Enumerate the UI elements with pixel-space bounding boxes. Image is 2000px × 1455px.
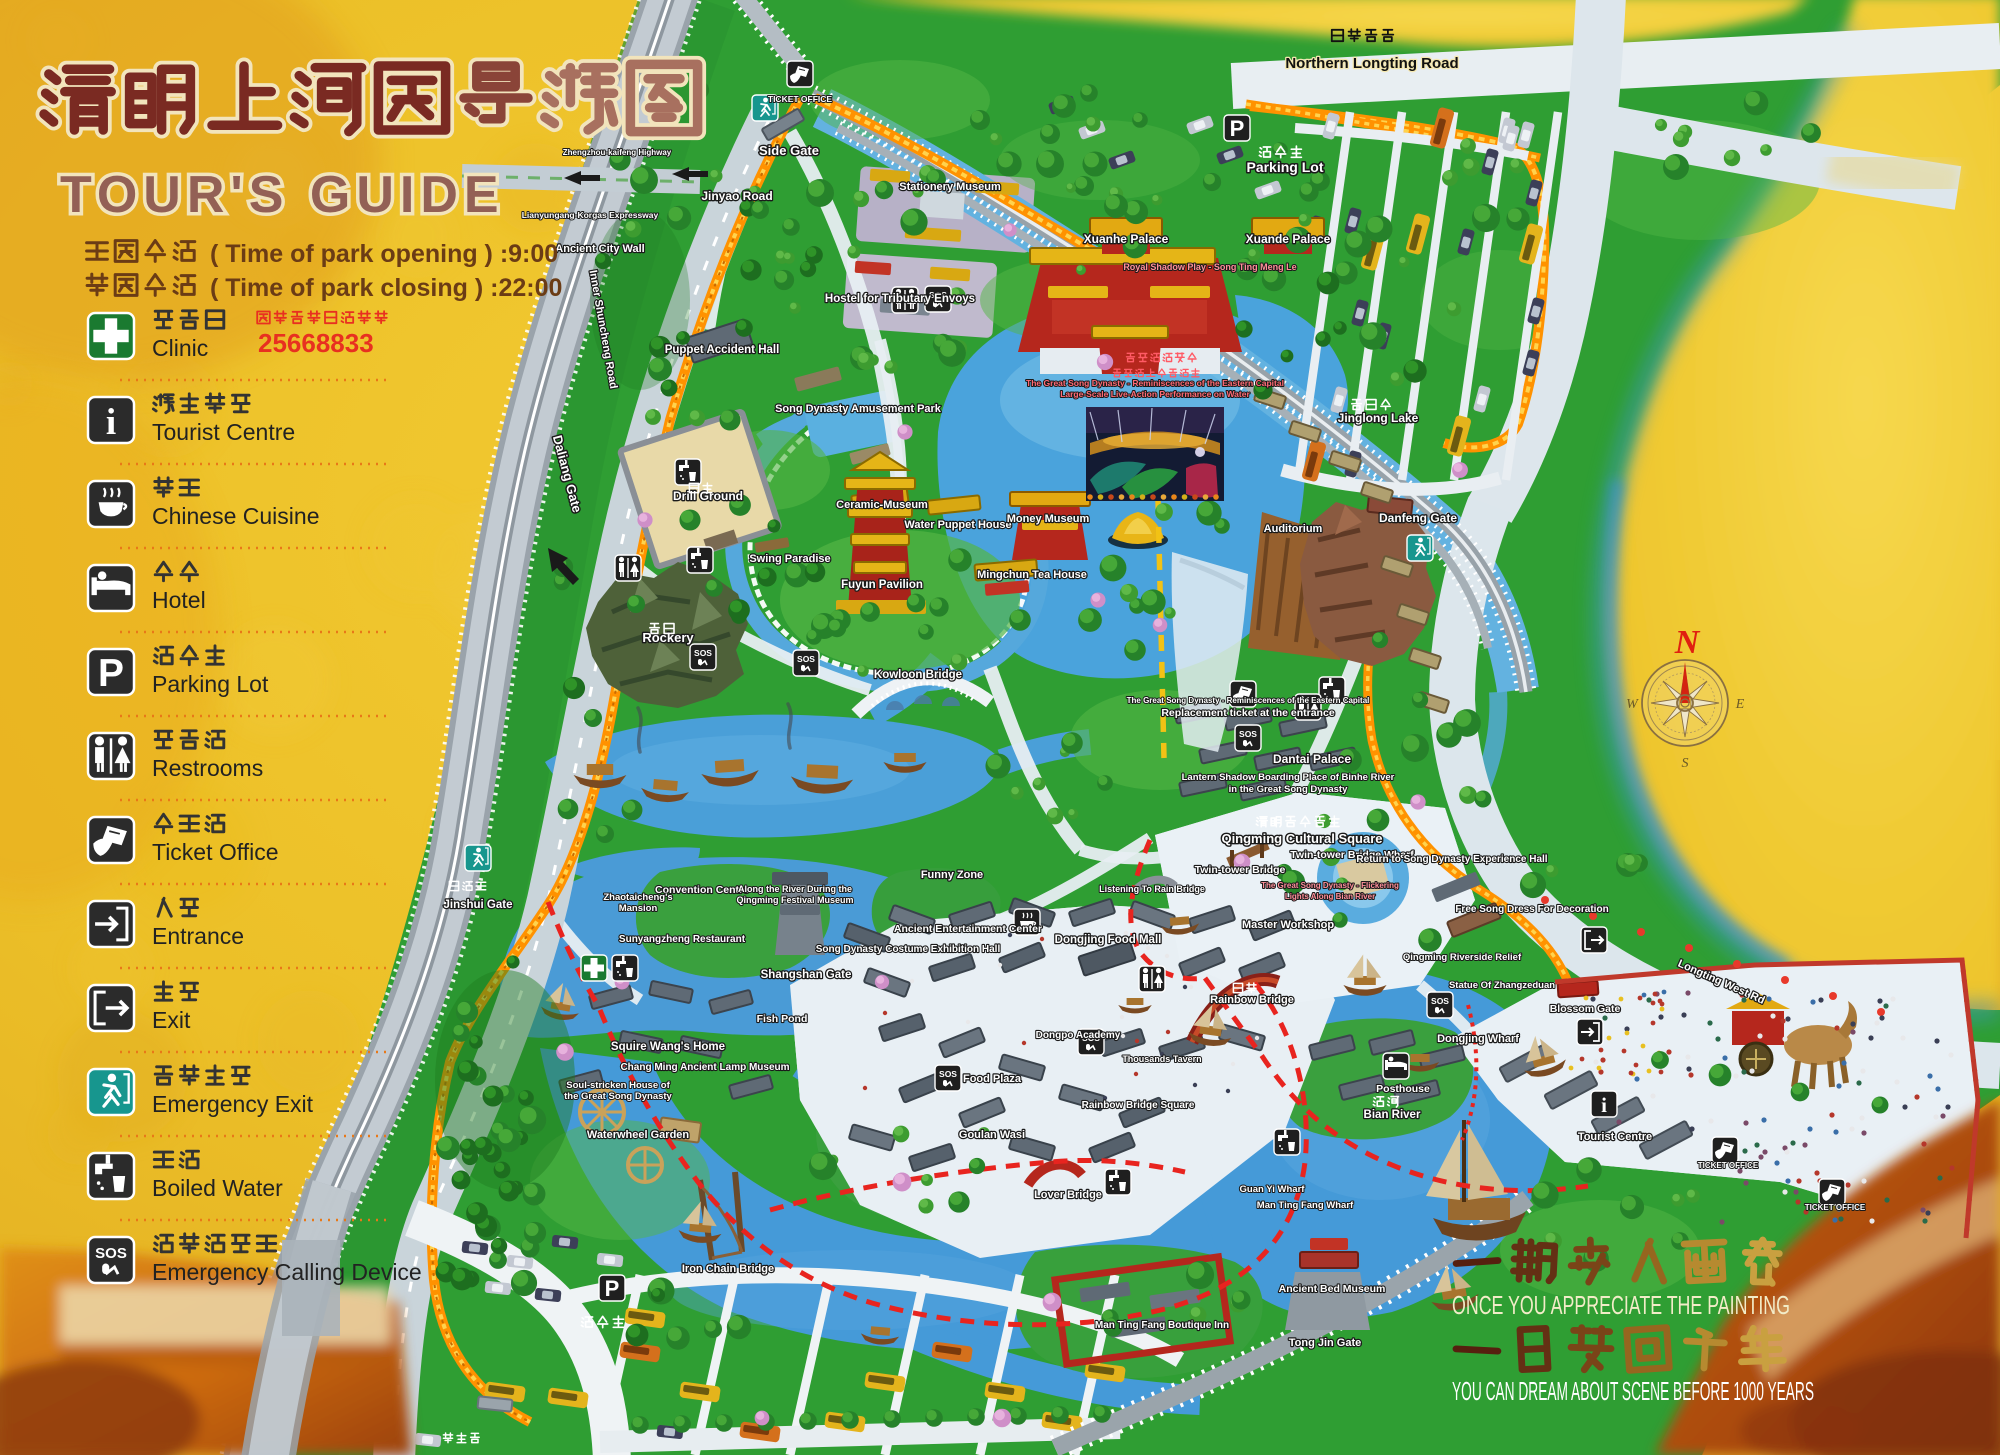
svg-text:Man Ting Fang Boutique Inn: Man Ting Fang Boutique Inn [1095, 1320, 1229, 1331]
svg-text:Zhaotaicheng's: Zhaotaicheng's [603, 892, 672, 903]
svg-text:Rainbow Bridge Square: Rainbow Bridge Square [1082, 1100, 1195, 1111]
svg-text:Xuanhe Palace: Xuanhe Palace [1084, 232, 1169, 246]
svg-text:Northern Longting Road: Northern Longting Road [1285, 55, 1458, 72]
svg-text:Return to Song Dynasty Experie: Return to Song Dynasty Experience Hall [1356, 854, 1547, 865]
svg-text:Water Puppet House: Water Puppet House [904, 519, 1011, 531]
svg-text:Free Song Dress For Decoration: Free Song Dress For Decoration [1455, 904, 1608, 915]
svg-text:( Time of park closing ) :22:0: ( Time of park closing ) :22:00 [210, 274, 562, 302]
svg-text:TICKET OFFICE: TICKET OFFICE [1805, 1203, 1866, 1212]
svg-text:Guan Yi Wharf: Guan Yi Wharf [1240, 1184, 1306, 1195]
svg-text:Emergency Exit: Emergency Exit [152, 1091, 314, 1117]
svg-text:Qingming Riverside Relief: Qingming Riverside Relief [1403, 952, 1522, 963]
svg-text:P: P [98, 652, 124, 695]
svg-text:Auditorium: Auditorium [1264, 523, 1323, 535]
svg-text:Song Dynasty Amusement Park: Song Dynasty Amusement Park [775, 403, 942, 415]
svg-text:Blossom Gate: Blossom Gate [1550, 1003, 1621, 1015]
svg-text:Emergency Calling Device: Emergency Calling Device [152, 1259, 422, 1285]
svg-text:Entrance: Entrance [152, 923, 244, 949]
svg-text:i: i [1601, 1093, 1607, 1117]
svg-text:Lianyungang-Korgas Expressway: Lianyungang-Korgas Expressway [522, 210, 659, 220]
svg-text:SOS: SOS [1431, 996, 1449, 1006]
svg-text:25668833: 25668833 [258, 328, 374, 358]
svg-text:Tourist Centre: Tourist Centre [1578, 1131, 1652, 1143]
svg-text:Hotel: Hotel [152, 587, 206, 613]
svg-text:Thousands Tavern: Thousands Tavern [1122, 1054, 1201, 1064]
svg-text:Statue Of Zhangzeduan: Statue Of Zhangzeduan [1449, 980, 1555, 991]
svg-text:Jinyao Road: Jinyao Road [701, 189, 772, 203]
svg-text:Jinglong Lake: Jinglong Lake [1338, 411, 1419, 425]
svg-text:the Great Song Dynasty: the Great Song Dynasty [564, 1091, 672, 1102]
svg-text:Posthouse: Posthouse [1376, 1083, 1430, 1095]
svg-text:Ticket Office: Ticket Office [152, 839, 279, 865]
svg-text:Tong Jin Gate: Tong Jin Gate [1289, 1337, 1362, 1349]
svg-text:Twin-tower Bridge: Twin-tower Bridge [1195, 864, 1286, 876]
svg-text:Lover Bridge: Lover Bridge [1034, 1189, 1102, 1201]
svg-text:The Great Song Dynasty - Flick: The Great Song Dynasty - Flickering [1261, 881, 1399, 890]
svg-text:Ancient Bed Museum: Ancient Bed Museum [1279, 1283, 1386, 1295]
svg-text:Qingming Cultural Square: Qingming Cultural Square [1221, 831, 1382, 846]
svg-text:P: P [605, 1276, 620, 1301]
svg-text:N: N [1674, 624, 1701, 661]
svg-text:Rockery: Rockery [642, 630, 694, 645]
svg-text:Restrooms: Restrooms [152, 755, 263, 781]
svg-text:Lights Along Bian River: Lights Along Bian River [1285, 892, 1375, 901]
svg-text:( Time of park opening ) :9:00: ( Time of park opening ) :9:00 [210, 240, 558, 268]
svg-text:ONCE YOU APPRECIATE THE PAINTI: ONCE YOU APPRECIATE THE PAINTING [1452, 1290, 1790, 1320]
svg-text:Dongpo Academy: Dongpo Academy [1036, 1030, 1121, 1041]
svg-text:Sunyangzheng Restaurant: Sunyangzheng Restaurant [619, 934, 746, 945]
svg-text:Replacement ticket at the entr: Replacement ticket at the entrance [1161, 707, 1334, 719]
svg-text:W: W [1626, 697, 1639, 712]
svg-text:Side Gate: Side Gate [759, 143, 819, 158]
svg-text:P: P [1230, 116, 1245, 141]
svg-text:Puppet Accident Hall: Puppet Accident Hall [665, 344, 780, 356]
svg-text:Tourist Centre: Tourist Centre [152, 419, 295, 445]
svg-text:Food Plaza: Food Plaza [963, 1073, 1022, 1085]
svg-text:SOS: SOS [797, 654, 815, 664]
svg-text:The Great Song Dynasty - Remin: The Great Song Dynasty - Reminiscences o… [1026, 378, 1284, 388]
svg-text:Funny Zone: Funny Zone [921, 869, 983, 881]
svg-text:Squire Wang's Home: Squire Wang's Home [611, 1041, 725, 1053]
svg-text:SOS: SOS [939, 1069, 957, 1079]
svg-text:Jinshui Gate: Jinshui Gate [443, 899, 512, 911]
svg-text:SOS: SOS [95, 1245, 127, 1262]
svg-text:Fuyun Pavilion: Fuyun Pavilion [841, 579, 923, 591]
svg-text:Soul-stricken House of: Soul-stricken House of [566, 1080, 670, 1091]
svg-text:Large-Scale Live-Action Perfor: Large-Scale Live-Action Performance on W… [1060, 389, 1250, 399]
svg-text:Shangshan Gate: Shangshan Gate [761, 969, 852, 981]
svg-text:Exit: Exit [152, 1007, 191, 1033]
svg-text:i: i [106, 402, 116, 443]
svg-text:Clinic: Clinic [152, 335, 208, 361]
svg-text:Hostel for Tributary Envoys: Hostel for Tributary Envoys [825, 293, 975, 305]
svg-text:Dantai Palace: Dantai Palace [1273, 752, 1351, 766]
svg-text:Mingchun Tea House: Mingchun Tea House [977, 569, 1087, 581]
svg-text:TICKET OFFICE: TICKET OFFICE [768, 94, 833, 104]
svg-text:Danfeng Gate: Danfeng Gate [1379, 511, 1457, 525]
svg-text:Chang Ming Ancient Lamp Museum: Chang Ming Ancient Lamp Museum [620, 1062, 789, 1073]
svg-text:Dongjing Food Mall: Dongjing Food Mall [1055, 934, 1162, 946]
svg-text:Parking Lot: Parking Lot [152, 671, 269, 697]
svg-text:in the Great Song Dynasty: in the Great Song Dynasty [1229, 784, 1348, 795]
svg-text:Zhengzhou-kaifeng Highway: Zhengzhou-kaifeng Highway [563, 148, 672, 157]
svg-text:TOUR'S GUIDE: TOUR'S GUIDE [60, 166, 505, 224]
svg-text:Song Dynasty Costume Exhibitio: Song Dynasty Costume Exhibition Hall [816, 944, 1001, 955]
svg-text:E: E [1735, 697, 1745, 712]
svg-text:SOS: SOS [694, 648, 712, 658]
svg-text:Iron Chain Bridge: Iron Chain Bridge [682, 1263, 774, 1275]
svg-text:Ancient Entertainment Center: Ancient Entertainment Center [894, 923, 1042, 935]
svg-text:Along the River During the: Along the River During the [738, 884, 852, 894]
svg-text:Royal Shadow Play - Song Ting: Royal Shadow Play - Song Ting Meng Le [1123, 262, 1296, 272]
svg-text:Lantern Shadow Boarding Place: Lantern Shadow Boarding Place of Binhe R… [1182, 772, 1395, 783]
svg-text:Ancient City Wall: Ancient City Wall [555, 243, 644, 255]
svg-text:Master Workshop: Master Workshop [1242, 919, 1334, 931]
svg-text:Dongjing Wharf: Dongjing Wharf [1437, 1033, 1519, 1045]
svg-text:Money Museum: Money Museum [1007, 513, 1090, 525]
svg-text:Listening To Rain Bridge: Listening To Rain Bridge [1099, 884, 1205, 894]
svg-text:Qingming Festival Museum: Qingming Festival Museum [736, 895, 853, 905]
svg-text:Goulan Wasi: Goulan Wasi [959, 1129, 1025, 1141]
svg-text:Man Ting Fang Wharf: Man Ting Fang Wharf [1257, 1200, 1354, 1211]
svg-text:Parking Lot: Parking Lot [1246, 159, 1323, 175]
svg-text:Fish Pond: Fish Pond [757, 1013, 808, 1025]
svg-text:Chinese Cuisine: Chinese Cuisine [152, 503, 319, 529]
svg-text:YOU CAN DREAM ABOUT SCENE BEFO: YOU CAN DREAM ABOUT SCENE BEFORE 1000 YE… [1452, 1376, 1814, 1406]
svg-text:S: S [1682, 756, 1689, 771]
svg-text:Rainbow Bridge: Rainbow Bridge [1210, 994, 1294, 1006]
svg-text:Mansion: Mansion [619, 903, 658, 914]
svg-text:Xuande Palace: Xuande Palace [1246, 232, 1331, 246]
svg-text:TICKET OFFICE: TICKET OFFICE [1698, 1161, 1759, 1170]
svg-text:The Great Song Dynasty - Remin: The Great Song Dynasty - Reminiscences o… [1127, 696, 1370, 705]
svg-text:Waterwheel Garden: Waterwheel Garden [587, 1129, 690, 1141]
svg-text:Bian River: Bian River [1364, 1109, 1421, 1121]
svg-text:Swing Paradise: Swing Paradise [749, 553, 830, 565]
svg-text:Ceramic-Museum: Ceramic-Museum [836, 499, 928, 511]
svg-text:SOS: SOS [1239, 729, 1257, 739]
svg-text:Kowloon Bridge: Kowloon Bridge [874, 669, 962, 681]
svg-text:Stationery Museum: Stationery Museum [899, 181, 1001, 193]
svg-text:Boiled Water: Boiled Water [152, 1175, 283, 1201]
